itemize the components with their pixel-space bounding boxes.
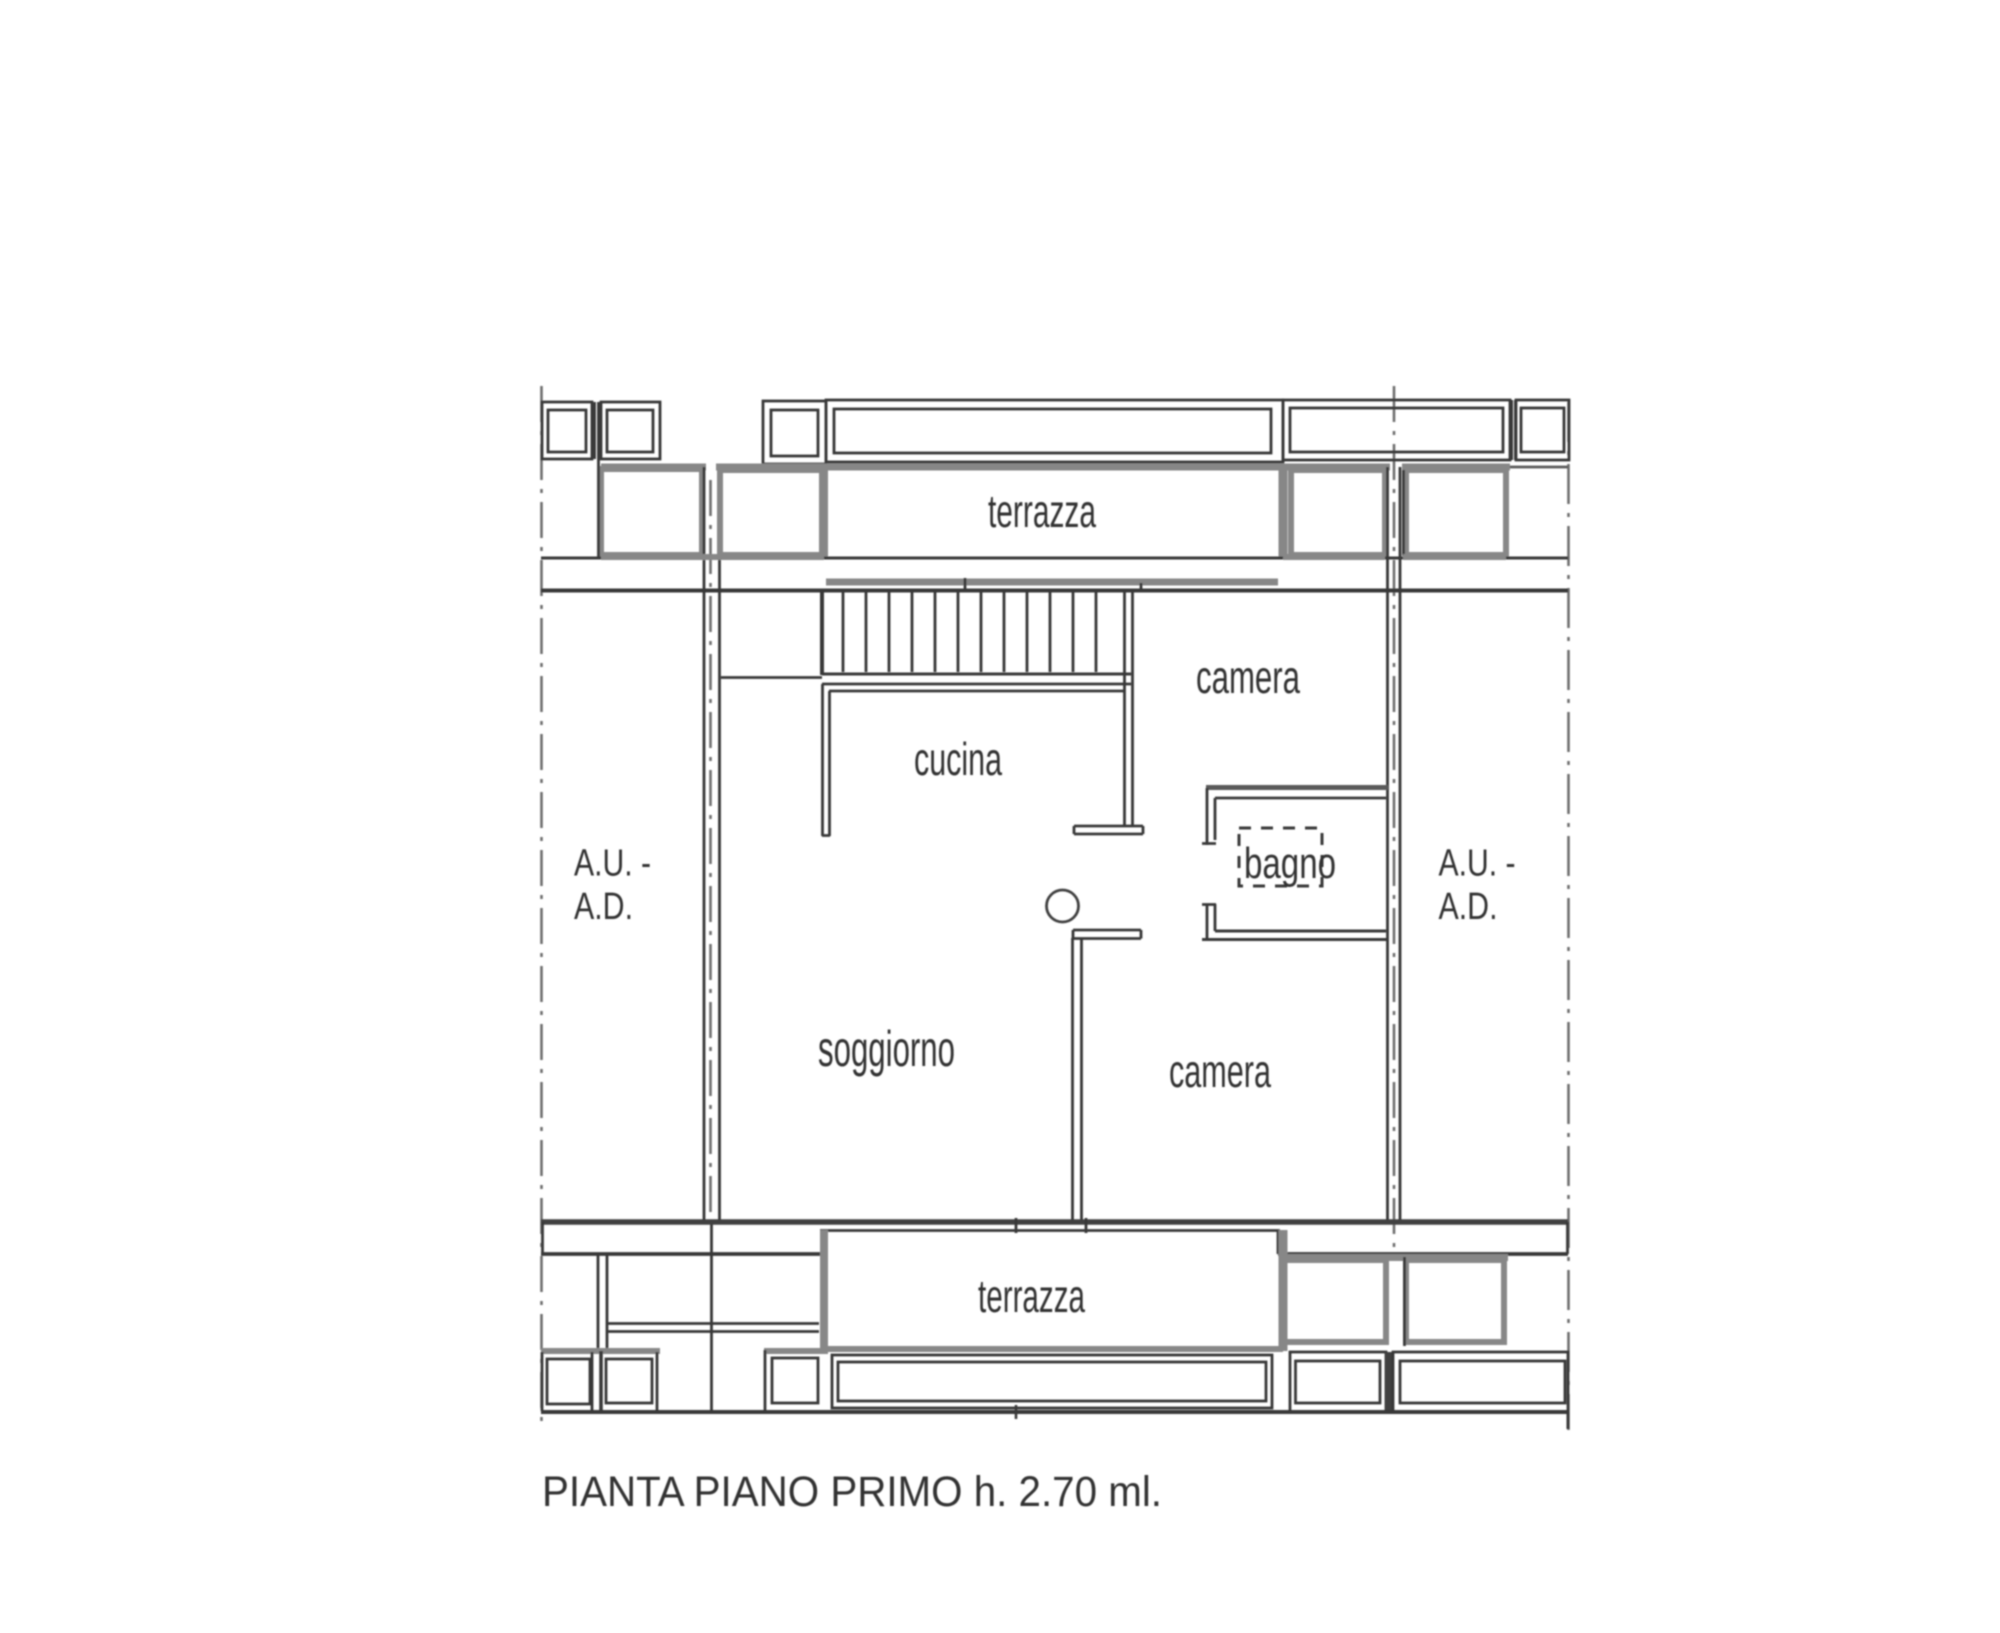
svg-text:camera: camera xyxy=(1169,1045,1271,1097)
svg-text:A.U. -: A.U. - xyxy=(1439,843,1516,885)
svg-text:cucina: cucina xyxy=(914,733,1002,785)
svg-text:terrazza: terrazza xyxy=(978,1270,1085,1322)
svg-text:A.U. -: A.U. - xyxy=(574,843,651,885)
svg-text:camera: camera xyxy=(1196,651,1300,703)
svg-text:PIANTA PIANO PRIMO h. 2.70 ml.: PIANTA PIANO PRIMO h. 2.70 ml. xyxy=(542,1469,1162,1516)
svg-text:A.D.: A.D. xyxy=(574,886,633,928)
svg-text:soggiorno: soggiorno xyxy=(818,1021,955,1077)
svg-text:A.D.: A.D. xyxy=(1439,886,1498,928)
svg-text:terrazza: terrazza xyxy=(988,485,1096,537)
svg-text:bagno: bagno xyxy=(1244,839,1336,888)
